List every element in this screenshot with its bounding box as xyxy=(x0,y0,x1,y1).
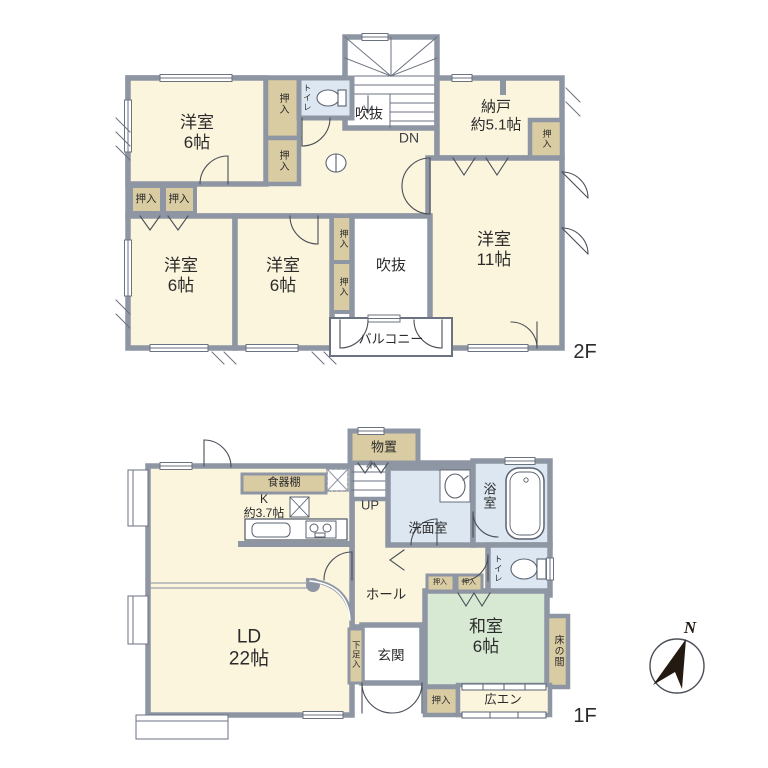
toilet-icon xyxy=(317,90,346,106)
tokonoma xyxy=(547,616,568,687)
refrigerator-space-icon xyxy=(290,497,309,517)
closet xyxy=(131,186,162,213)
washbasin-icon xyxy=(440,470,470,502)
room-yoshitsu-sw xyxy=(128,216,235,348)
hand-basin-icon xyxy=(326,154,346,172)
closet xyxy=(427,575,454,591)
closet xyxy=(457,575,482,591)
toilet-room-2f xyxy=(299,78,352,118)
closet xyxy=(266,138,299,184)
room-yoshitsu-nw xyxy=(128,78,266,184)
hatch-box-icon xyxy=(327,469,348,491)
room-washitsu xyxy=(425,591,547,687)
room-senmen xyxy=(388,468,473,545)
compass xyxy=(650,639,704,693)
toilet-icon xyxy=(511,559,546,579)
void-fukinuke xyxy=(352,216,430,320)
staircase-1f xyxy=(352,461,390,499)
floorplan-drawing xyxy=(0,0,768,768)
kitchen-counter xyxy=(245,519,347,540)
floor1-plan xyxy=(128,428,568,740)
closet xyxy=(164,186,195,213)
wall-stub xyxy=(500,78,506,95)
floor2-plan xyxy=(116,34,588,365)
sink-icon xyxy=(252,523,290,537)
staircase-2f xyxy=(345,37,437,128)
closet xyxy=(530,120,562,158)
shoe-cabinet xyxy=(349,629,363,683)
toilet-room-1f xyxy=(488,545,550,595)
room-ld-k xyxy=(148,466,352,715)
cupboard xyxy=(242,474,326,493)
room-genkan xyxy=(362,625,422,683)
stove-icon xyxy=(306,521,336,538)
room-bath xyxy=(473,461,550,545)
bathtub-icon xyxy=(506,468,544,539)
balcony xyxy=(330,315,452,356)
room-monooki xyxy=(350,431,418,463)
closet xyxy=(266,78,299,138)
floorplan-canvas: 洋室 6帖 押入 押入 トイレ 吹抜 DN 納戸 約5.1帖 押入 洋室 11帖… xyxy=(0,0,768,768)
kitchen-half-wall xyxy=(238,541,352,547)
closet xyxy=(425,687,458,715)
